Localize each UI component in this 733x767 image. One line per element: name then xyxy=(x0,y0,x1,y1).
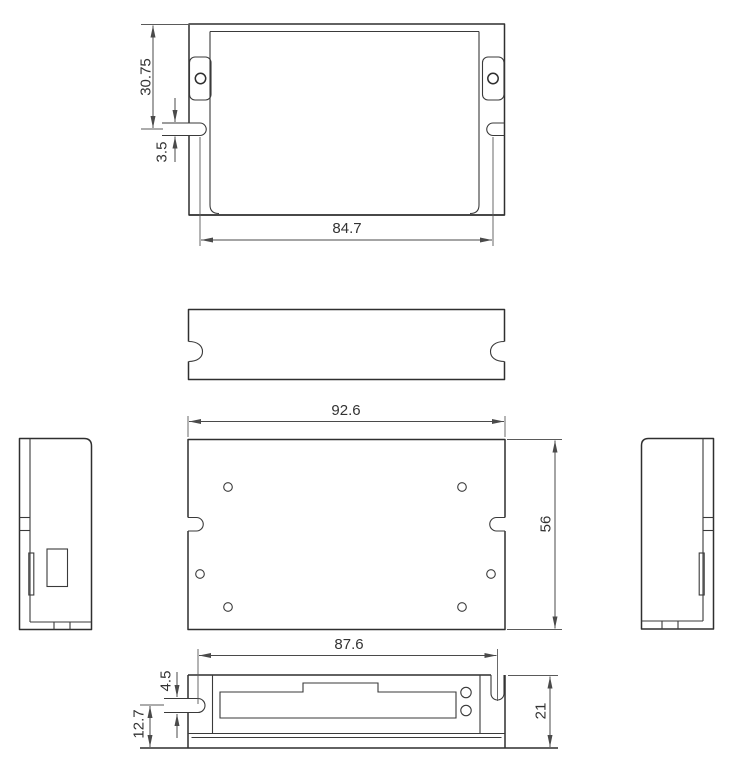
mounting-hole-6 xyxy=(458,603,467,612)
dim-label-face-width: 92.6 xyxy=(331,402,360,419)
dim-panel-slot-span: 87.6 xyxy=(198,636,498,704)
panel-left-slot-tab xyxy=(164,699,205,713)
left-ear-hole-icon xyxy=(195,73,205,83)
dim-label-panel-slot-width: 4.5 xyxy=(158,671,175,692)
dim-top-slot-width: 3.5 xyxy=(154,98,176,162)
edge-view-left-notch xyxy=(189,342,203,362)
mounting-hole-3 xyxy=(196,570,205,579)
left-mounting-ear xyxy=(190,57,212,100)
right-ear-hole-icon xyxy=(488,73,498,83)
dim-label-face-height: 56 xyxy=(538,516,555,533)
right-mounting-ear xyxy=(483,57,505,100)
engineering-drawing-page: 30.75 3.5 84.7 92.6 xyxy=(0,0,733,767)
face-outline xyxy=(188,440,505,630)
dim-face-height: 56 xyxy=(507,440,562,630)
top-view-inner-left-edge xyxy=(210,32,219,214)
front-panel-view xyxy=(140,675,558,748)
dim-face-width: 92.6 xyxy=(188,402,505,437)
dim-panel-height: 21 xyxy=(508,676,558,748)
face-left-slot xyxy=(188,518,203,532)
dim-flange-to-slot: 30.75 xyxy=(138,25,191,130)
dim-label-slot-to-base: 12.7 xyxy=(131,709,148,738)
face-right-slot xyxy=(490,518,505,532)
engineering-drawing-canvas: 30.75 3.5 84.7 92.6 xyxy=(0,0,733,767)
edge-view-outline xyxy=(189,310,505,380)
connector-cutout xyxy=(220,683,456,718)
dim-top-slot-span: 84.7 xyxy=(200,137,493,246)
dim-panel-slot-width: 4.5 xyxy=(158,671,178,738)
led-hole-2 xyxy=(461,705,471,715)
left-side-view xyxy=(20,439,92,630)
mounting-hole-5 xyxy=(224,603,233,612)
mounting-face-view xyxy=(188,440,505,630)
mounting-hole-1 xyxy=(224,483,233,492)
top-view-right-slot xyxy=(487,123,505,136)
top-view-inner-right-edge xyxy=(470,32,479,214)
mounting-hole-4 xyxy=(487,570,496,579)
right-side-view xyxy=(642,439,714,630)
top-view-left-slot xyxy=(162,123,206,136)
mounting-hole-2 xyxy=(458,483,467,492)
top-view xyxy=(162,24,505,215)
top-view-outline xyxy=(189,24,505,215)
dim-label-top-slot-width: 3.5 xyxy=(154,142,171,163)
dim-label-panel-slot-span: 87.6 xyxy=(334,636,363,653)
dim-slot-to-base: 12.7 xyxy=(131,705,165,747)
dim-label-panel-height: 21 xyxy=(533,703,550,720)
edge-view-right-notch xyxy=(491,342,505,362)
left-side-window-cutout xyxy=(47,549,68,587)
led-hole-1 xyxy=(461,687,471,697)
top-edge-view xyxy=(189,310,505,380)
dim-label-flange-to-slot: 30.75 xyxy=(138,58,155,96)
dim-label-top-slot-span: 84.7 xyxy=(332,220,361,237)
